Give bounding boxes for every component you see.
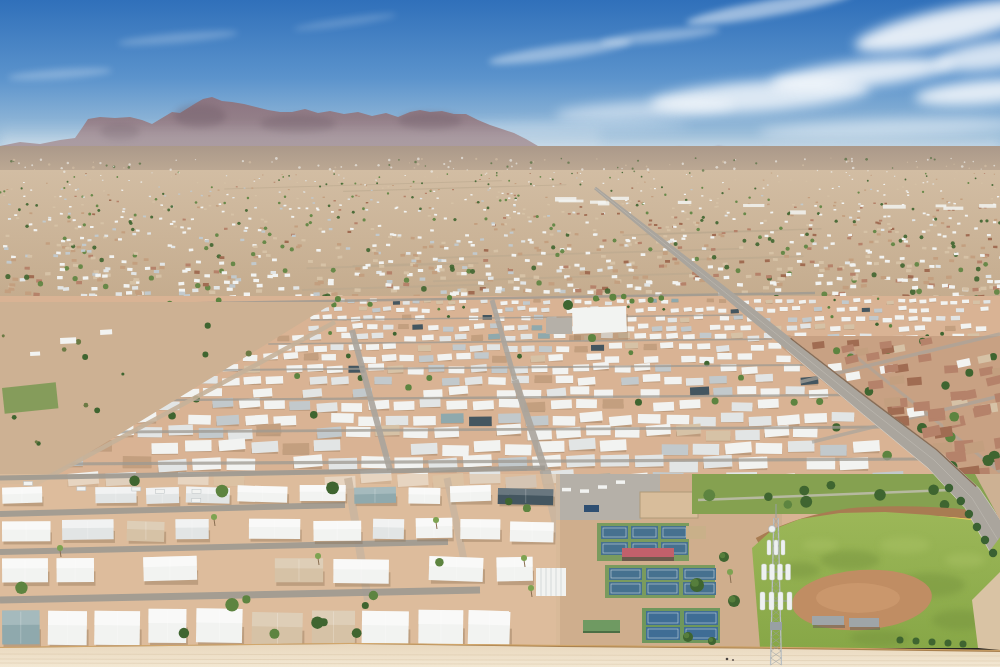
home-roof [849,307,857,311]
home-roof [471,334,483,340]
home-roof [185,440,212,451]
home-roof [441,413,464,423]
home-roof [584,301,591,305]
home-roof [521,334,533,340]
home-roof [919,300,926,304]
home-roof [635,308,643,313]
house-roof [913,401,930,411]
home-roof [411,443,438,455]
home-roof [470,345,484,352]
home-roof [983,300,990,304]
home-roof [815,324,826,329]
home-roof [679,399,700,409]
home-roof [556,375,574,383]
home-roof [780,307,788,311]
home-roof [869,316,878,320]
antenna-panel [786,564,791,580]
home-roof [331,376,349,385]
home-roof [413,416,436,426]
home-roof [804,413,827,423]
home-roof [523,301,530,305]
home-roof [403,301,410,305]
commercial-roof [611,197,629,200]
home-roof [717,353,731,359]
home-roof [456,353,471,360]
home-roof [802,317,812,322]
palm-tree [315,553,321,559]
home-roof [399,355,413,361]
home-roof [898,306,906,311]
home-roof [638,299,645,303]
tree [800,496,812,508]
home-roof [664,377,682,385]
home-roof [336,327,347,332]
tree [179,628,189,638]
home-roof [553,416,576,426]
home-roof [617,299,624,303]
home-roof [422,309,430,313]
home-roof [961,323,972,329]
bush [929,639,936,646]
home-roof [799,300,806,304]
home-roof [505,444,532,455]
home-roof [941,301,948,305]
home-roof [453,344,466,350]
home-roof [609,343,622,349]
home-roof [386,416,409,426]
home-roof [749,416,772,426]
home-roof [962,299,969,303]
home-roof [512,300,519,304]
home-roof [367,324,377,329]
home-roof [716,345,730,352]
home-roof [470,308,478,312]
home-roof [668,318,677,323]
home-roof [330,344,343,350]
home-roof [439,336,451,342]
home-roof [666,333,678,339]
home-roof [758,399,779,409]
home-roof [976,326,987,331]
aerial-photo [0,0,1000,667]
home-roof [737,386,756,394]
home-roof [446,400,467,410]
home-roof [820,445,847,456]
home-roof [505,308,513,312]
home-roof [721,413,744,423]
home-roof [574,300,581,304]
home-roof [671,308,679,312]
home-roof [844,324,855,329]
house-roof [992,367,1000,376]
home-roof [706,306,714,310]
home-roof [751,345,764,351]
home-roof [412,324,423,329]
home-roof [706,431,731,441]
home-roof [556,346,569,352]
home-roof [383,306,391,311]
shed-roof [100,329,112,335]
clubhouse-parking [546,318,572,334]
home-roof [283,443,310,454]
home-roof [434,427,459,438]
home-roof [862,308,870,312]
home-roof [709,376,727,384]
home-roof [644,356,659,363]
home-roof [266,376,284,384]
home-roof [428,325,439,331]
shed-roof [30,351,40,356]
palm-tree [211,514,217,520]
hedge [965,510,973,518]
home-roof [394,401,415,410]
home-roof [681,326,692,332]
palm-tree [57,545,63,551]
hedge [981,536,989,544]
city-sprawl [0,157,1000,306]
commercial-roof [678,201,692,204]
home-roof [625,342,638,348]
home-roof [578,377,596,386]
home-roof [539,346,552,352]
antenna-panel [787,592,792,610]
home-roof [535,375,552,383]
home-roof [480,299,487,303]
home-roof [660,342,673,349]
home-roof [648,307,656,311]
home-roof [787,299,794,303]
home-roof [638,414,661,424]
tree [799,486,809,496]
home-roof [492,356,507,363]
home-roof [404,336,416,342]
pedestrian [732,659,734,661]
trailer [584,505,599,512]
home-roof [436,300,443,304]
canopy-seating [622,557,674,561]
home-roof [487,344,500,350]
home-roof [950,301,957,305]
home-roof [443,327,453,332]
home-roof [627,317,636,322]
home-roof [973,300,980,304]
rv [192,489,201,493]
home-roof [815,316,825,321]
home-roof [188,415,211,425]
home-roof [679,343,692,349]
hedge [973,523,981,531]
home-roof [473,400,494,410]
home-roof [334,307,342,311]
home-roof [504,325,515,330]
foreground-homes [0,468,566,651]
home-roof [650,333,662,339]
home-roof [518,325,529,330]
home-roof [331,413,354,423]
home-roof [809,389,829,398]
home-roof [310,376,328,385]
scene-canvas [0,0,1000,667]
home-roof [498,413,521,423]
home-roof [754,299,761,303]
home-roof [576,399,597,408]
home-roof [372,308,380,313]
home-roof [666,326,677,331]
home-roof [359,306,367,310]
dugout-canopy [812,616,844,625]
home-roof [832,412,855,422]
home-roof [277,335,289,341]
home-roof [814,307,822,311]
home-roof [465,376,483,385]
home-roof [459,326,470,332]
home-roof [531,355,546,362]
home-roof [304,353,319,360]
home-roof [638,323,649,328]
home-roof [720,316,729,321]
hedge [989,549,997,557]
tree [369,591,378,600]
bush [897,637,904,644]
home-roof [693,444,720,455]
sand-court [640,492,698,518]
parked-rv [598,485,607,489]
home-roof [469,416,492,426]
home-roof [396,308,404,312]
rv [155,489,164,493]
home-roof [646,424,671,436]
antenna-panel [769,592,774,610]
home-roof [653,402,674,412]
red-canopy [622,548,674,558]
home-roof [837,307,845,311]
home-roof [856,317,865,322]
home-roof [420,398,441,408]
tree [326,481,339,494]
bush [960,641,967,648]
home-roof [303,388,323,398]
home-roof [644,344,657,350]
antenna-panel [778,592,783,610]
home-roof [883,318,892,323]
home-roof [317,426,342,438]
home-roof [569,438,596,451]
home-roof [283,352,298,360]
home-roof [199,428,224,439]
home-roof [695,308,703,313]
tree [15,582,27,594]
home-roof [356,333,368,339]
home-roof [328,458,357,471]
home-roof [410,307,418,311]
home-roof [853,298,860,302]
home-roof [366,344,379,350]
home-roof [776,356,791,363]
palm-tree [528,585,534,591]
home-roof [449,385,469,395]
home-roof [575,346,588,352]
home-roof [488,377,506,385]
mountain-shading [174,104,226,128]
home-roof [552,367,568,374]
tree [784,500,793,509]
home-roof [724,325,735,330]
house-roof [907,377,922,386]
tree [352,628,362,638]
home-roof [914,325,925,331]
city-base [0,170,1000,304]
home-roof [980,306,988,311]
home-roof [922,317,931,322]
home-roof [936,316,945,321]
tree [129,475,139,485]
home-roof [314,346,327,352]
home-roof [841,317,850,321]
home-roof [767,309,775,313]
home-roof [680,318,689,323]
antenna-panel [781,540,785,555]
commercial-roof [883,205,906,209]
house-roof [884,397,901,407]
home-roof [600,439,627,452]
home-roof [921,308,929,312]
home-roof [548,354,563,361]
home-roof [500,301,507,305]
home-roof [374,377,391,385]
antenna-panel [778,564,783,580]
home-roof [686,378,704,386]
palm-tree [727,569,733,575]
home-roof [295,345,308,352]
home-roof [874,308,882,312]
hedge [957,497,965,505]
home-roof [669,461,698,473]
bush [945,640,952,647]
parked-rv [580,489,589,493]
tree [362,602,369,609]
rv [77,487,86,491]
home-roof [621,377,639,385]
home-roof [570,386,589,394]
home-roof [372,333,384,339]
home-roof [800,323,811,329]
home-roof [533,299,540,303]
home-roof [887,301,894,305]
commercial-roof [790,210,806,214]
home-roof [316,402,337,412]
home-roof [474,440,501,452]
home-roof [499,399,520,408]
home-roof [755,374,773,382]
home-roof [909,299,916,303]
home-roof [853,440,880,453]
home-roof [541,308,549,313]
equipment-box [770,622,782,630]
commercial-roof [943,207,963,210]
home-roof [474,323,485,329]
bush [913,638,920,645]
parked-rv [562,488,571,492]
tree [435,558,443,566]
home-roof [488,333,500,339]
home-roof [766,299,773,303]
home-roof [605,356,620,363]
home-roof [253,388,273,397]
home-roof [786,386,805,395]
home-roof [710,325,721,330]
antenna-panel [762,564,767,580]
home-roof [662,444,689,455]
tree [311,616,323,628]
home-roof [289,401,310,410]
commercial-roof [979,204,996,208]
home-roof [321,354,335,361]
tree [764,493,773,502]
home-roof [929,298,936,302]
home-roof [738,353,752,359]
tree [216,485,229,498]
home-roof [448,301,455,305]
home-roof [442,377,460,385]
home-roof [586,425,611,436]
home-roof [697,343,710,349]
home-roof [809,300,816,304]
home-roof [908,316,918,321]
home-roof [422,335,434,341]
home-roof [307,364,323,372]
home-roof [787,326,798,331]
antenna-panel [770,564,775,580]
tree [928,484,939,495]
home-roof [725,441,752,454]
hedge [945,484,953,492]
home-roof [718,309,726,313]
home-roof [788,317,797,322]
home-roof [532,325,542,330]
tree [874,489,886,501]
home-roof [346,427,371,438]
pedestrian [726,658,729,661]
clubhouse [572,306,627,334]
home-roof [158,459,187,473]
home-roof [700,333,712,338]
home-roof [603,399,624,408]
home-roof [591,345,604,351]
home-roof [245,414,268,425]
home-roof [543,300,550,304]
commercial-roof [559,200,584,203]
home-roof [735,430,760,441]
home-roof [264,400,285,409]
tree [242,595,250,603]
home-roof [474,352,488,358]
tree [505,498,512,505]
home-roof [951,316,960,321]
home-roof [218,438,245,451]
commercial-roof [936,204,947,207]
house-roof [944,365,958,374]
home-roof [899,326,910,332]
home-roof [830,326,841,331]
tree [269,629,279,639]
home-roof [442,445,469,456]
home-roof [775,299,782,303]
pergola-roof [686,526,706,539]
home-roof [842,300,849,304]
commercial-roof [590,201,606,204]
parked-rv [616,480,625,484]
home-roof [251,441,278,453]
